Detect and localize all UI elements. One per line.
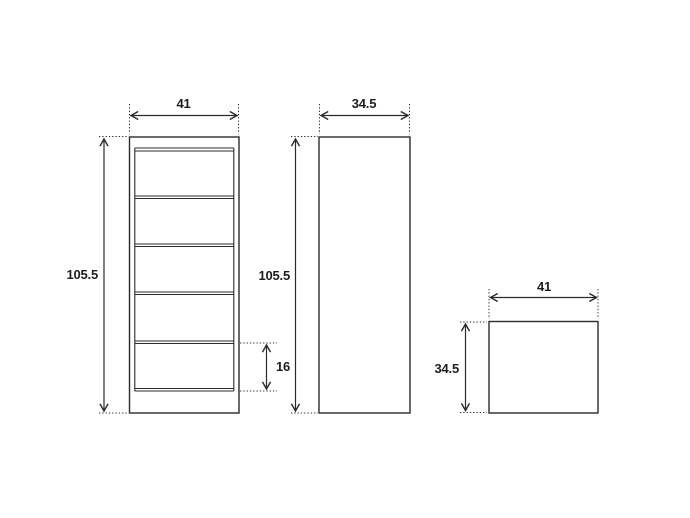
dimension-drawing: 41 105.5 16 34.5 [0,0,690,518]
front-width-label: 41 [176,96,190,111]
side-view-outline [319,137,410,413]
front-view-outline [130,137,240,413]
top-width-label: 41 [537,279,551,294]
side-width-label: 34.5 [352,96,377,111]
side-height-label: 105.5 [258,268,290,283]
top-width-dimension: 41 [489,279,598,319]
front-height-label: 105.5 [66,267,98,282]
top-depth-label: 34.5 [434,361,459,376]
top-view [489,322,598,414]
side-width-dimension: 34.5 [320,96,410,134]
side-view [319,137,410,413]
bottom-drawer-height-dimension: 16 [240,343,290,391]
top-view-outline [489,322,598,414]
top-depth-dimension: 34.5 [434,322,487,413]
bottom-drawer-height-label: 16 [276,359,290,374]
front-height-dimension: 105.5 [66,137,128,414]
dimension-drawing-canvas: 41 105.5 16 34.5 [0,0,690,518]
front-width-dimension: 41 [130,96,239,134]
front-view [130,137,240,413]
